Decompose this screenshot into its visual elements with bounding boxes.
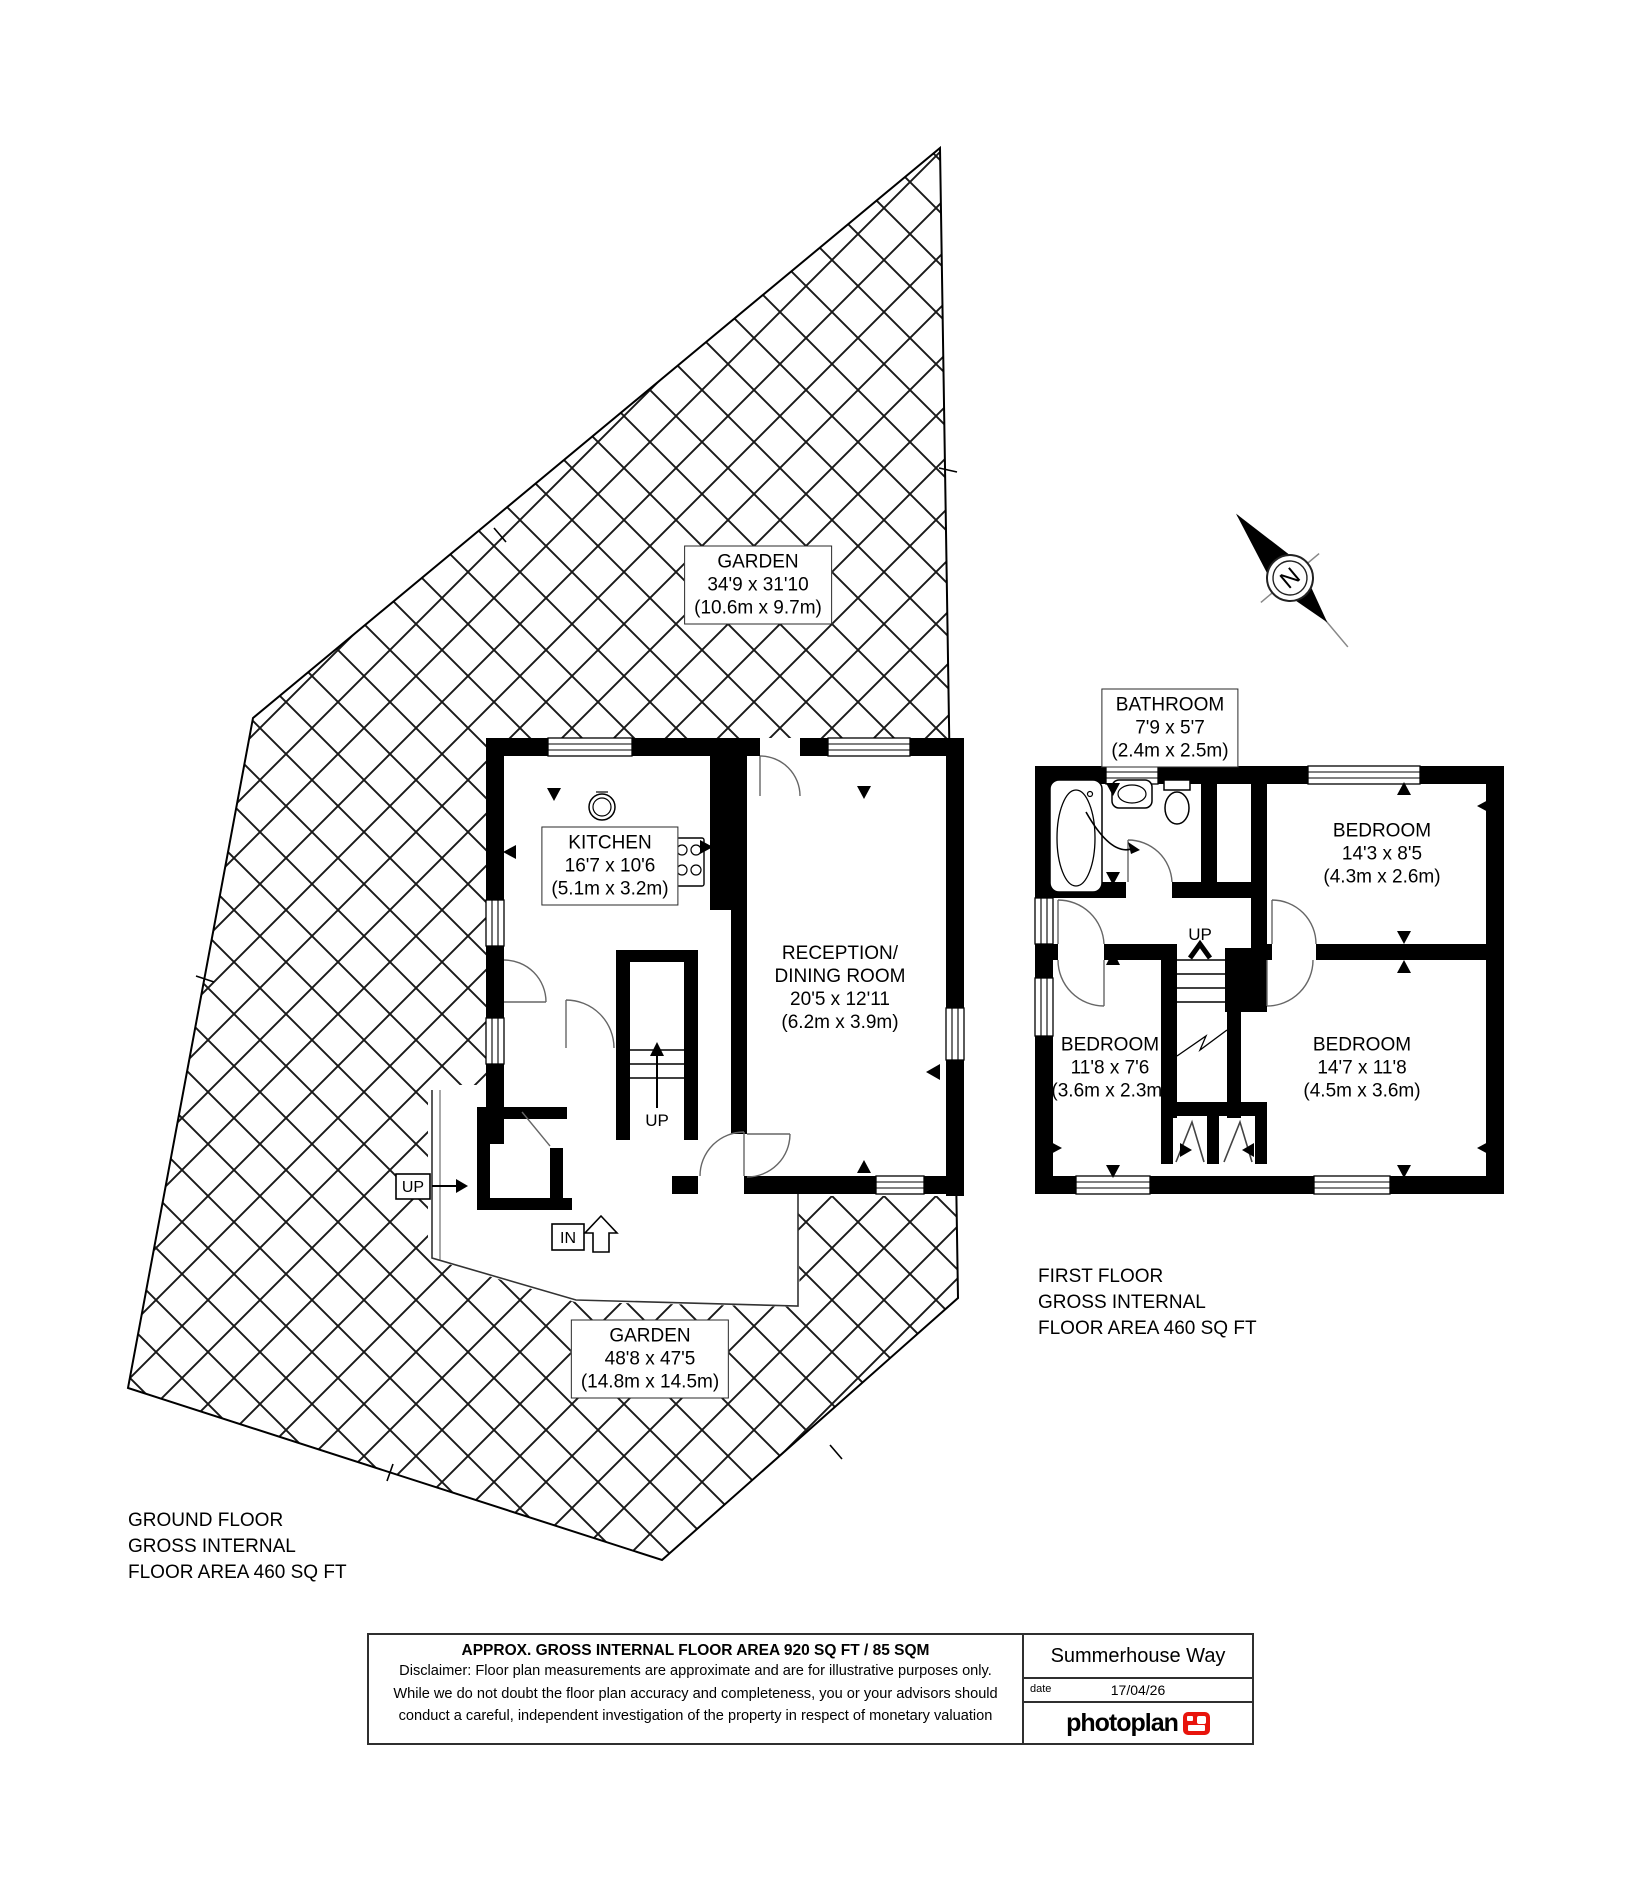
property-address: Summerhouse Way [1024,1635,1252,1679]
footer-area-title: APPROX. GROSS INTERNAL FLOOR AREA 920 SQ… [369,1642,1022,1660]
room-name: BATHROOM [1111,694,1228,717]
room-label-kitchen: KITCHEN 16'7 x 10'6 (5.1m x 3.2m) [541,827,678,906]
photoplan-logo-text: photoplan [1066,1709,1178,1738]
bath-icon [1050,780,1102,892]
room-name: KITCHEN [551,832,668,855]
room-metric: (4.3m x 2.6m) [1323,866,1440,889]
room-label-reception: RECEPTION/ DINING ROOM 20'5 x 12'11 (6.2… [775,942,906,1034]
date-row: date 17/04/26 [1024,1679,1252,1703]
entrance-in-label: IN [560,1230,576,1247]
room-name: BEDROOM [1051,1034,1168,1057]
room-imperial: 7'9 x 5'7 [1111,717,1228,740]
room-metric: (3.6m x 2.3m) [1051,1080,1168,1103]
photoplan-camera-icon [1183,1712,1210,1735]
room-label-bedroom-top-right: BEDROOM 14'3 x 8'5 (4.3m x 2.6m) [1323,820,1440,889]
garden-up-label: UP [402,1179,424,1196]
date-label: date [1030,1683,1051,1695]
room-name: BEDROOM [1323,820,1440,843]
footer-info-box: Summerhouse Way date 17/04/26 photoplan [1022,1633,1254,1745]
summary-line: GROSS INTERNAL [1038,1290,1257,1316]
room-metric: (6.2m x 3.9m) [775,1011,906,1034]
ground-up-label: UP [645,1111,669,1130]
summary-line: FLOOR AREA 460 SQ FT [128,1560,347,1586]
footer-disclaimer-line: While we do not doubt the floor plan acc… [369,1683,1022,1706]
date-value: 17/04/26 [1111,1682,1166,1698]
room-label-garden-top: GARDEN 34'9 x 31'10 (10.6m x 9.7m) [684,546,832,625]
room-imperial: 14'3 x 8'5 [1323,843,1440,866]
footer-disclaimer-line: conduct a careful, independent investiga… [369,1705,1022,1728]
room-imperial: 34'9 x 31'10 [694,574,822,597]
bathroom-arrow-head [1128,842,1140,854]
first-floor-summary: FIRST FLOOR GROSS INTERNAL FLOOR AREA 46… [1038,1264,1257,1342]
toilet-icon [1164,780,1190,824]
room-label-bedroom-bottom-right: BEDROOM 14'7 x 11'8 (4.5m x 3.6m) [1303,1034,1420,1103]
ground-floor-summary: GROUND FLOOR GROSS INTERNAL FLOOR AREA 4… [128,1508,347,1586]
room-imperial: 11'8 x 7'6 [1051,1057,1168,1080]
brand-row: photoplan [1024,1703,1252,1743]
room-label-bedroom-bottom-left: BEDROOM 11'8 x 7'6 (3.6m x 2.3m) [1051,1034,1168,1103]
entrance-door-gap [698,1176,744,1194]
room-name: GARDEN [694,551,822,574]
room-imperial: 20'5 x 12'11 [775,988,906,1011]
room-imperial: 48'8 x 47'5 [581,1348,719,1371]
compass-north-icon: N [1207,489,1377,671]
footer-disclaimer-box: APPROX. GROSS INTERNAL FLOOR AREA 920 SQ… [367,1633,1024,1745]
first-floor-up-label: UP [1188,925,1212,944]
summary-line: FIRST FLOOR [1038,1264,1257,1290]
summary-line: GROSS INTERNAL [128,1534,347,1560]
room-name: RECEPTION/ [775,942,906,965]
summary-line: FLOOR AREA 460 SQ FT [1038,1316,1257,1342]
room-metric: (4.5m x 3.6m) [1303,1080,1420,1103]
room-metric: (10.6m x 9.7m) [694,597,822,620]
room-metric: (14.8m x 14.5m) [581,1371,719,1394]
room-name: DINING ROOM [775,965,906,988]
room-imperial: 14'7 x 11'8 [1303,1057,1420,1080]
room-imperial: 16'7 x 10'6 [551,855,668,878]
room-metric: (5.1m x 3.2m) [551,878,668,901]
room-label-bathroom: BATHROOM 7'9 x 5'7 (2.4m x 2.5m) [1101,689,1238,768]
room-label-garden-bottom: GARDEN 48'8 x 47'5 (14.8m x 14.5m) [571,1320,729,1399]
room-name: BEDROOM [1303,1034,1420,1057]
room-metric: (2.4m x 2.5m) [1111,740,1228,763]
floorplan-page: UP UP [0,0,1637,1887]
reception-top-door-gap [760,738,800,756]
summary-line: GROUND FLOOR [128,1508,347,1534]
room-name: GARDEN [581,1325,719,1348]
footer-disclaimer-line: Disclaimer: Floor plan measurements are … [369,1660,1022,1683]
